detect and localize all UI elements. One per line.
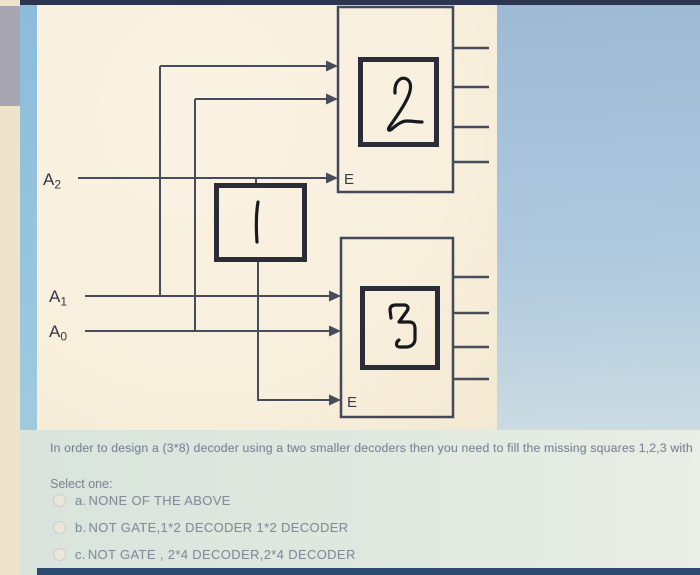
answer-options: a.NONE OF THE ABOVE b.NOT GATE,1*2 DECOD… — [53, 493, 356, 562]
decoder-circuit-diagram: E E A2 A1 A0 — [37, 5, 497, 430]
option-text: NOT GATE , 2*4 DECODER,2*4 DECODER — [88, 547, 356, 562]
option-label: c.NOT GATE , 2*4 DECODER,2*4 DECODER — [75, 547, 356, 562]
radio-button-a[interactable] — [53, 494, 66, 507]
arrow-icon — [326, 61, 338, 72]
option-letter: a. — [75, 493, 87, 508]
arrow-icon — [329, 291, 341, 302]
decoder-diagram-panel: E E A2 A1 A0 — [37, 5, 497, 430]
arrow-icon — [326, 94, 338, 105]
enable-label-bottom: E — [347, 394, 357, 411]
handwritten-digit-2 — [389, 78, 422, 130]
option-row-a[interactable]: a.NONE OF THE ABOVE — [53, 493, 356, 508]
input-label-a1: A1 — [49, 287, 67, 309]
arrow-icon — [326, 173, 338, 184]
left-blue-strip — [20, 5, 37, 430]
missing-square-3 — [363, 289, 438, 368]
option-row-b[interactable]: b.NOT GATE,1*2 DECODER 1*2 DECODER — [53, 520, 356, 535]
select-one-label: Select one: — [50, 477, 113, 491]
missing-square-1 — [217, 186, 305, 260]
option-text: NOT GATE,1*2 DECODER 1*2 DECODER — [89, 520, 349, 535]
left-gray-block — [0, 6, 20, 106]
option-letter: c. — [75, 547, 86, 562]
input-label-a0: A0 — [49, 322, 67, 344]
quiz-screenshot: E E A2 A1 A0 In order to design a (3*8) … — [0, 0, 700, 575]
handwritten-digit-1 — [256, 202, 258, 242]
question-text: In order to design a (3*8) decoder using… — [50, 441, 693, 455]
option-row-c[interactable]: c.NOT GATE , 2*4 DECODER,2*4 DECODER — [53, 547, 356, 562]
radio-button-c[interactable] — [53, 548, 66, 561]
arrow-icon — [329, 326, 341, 337]
bottom-decoder-outputs — [453, 277, 489, 379]
missing-square-2 — [361, 60, 437, 145]
handwritten-digit-3 — [390, 305, 415, 347]
radio-button-b[interactable] — [53, 521, 66, 534]
input-label-a2: A2 — [43, 170, 61, 192]
option-label: b.NOT GATE,1*2 DECODER 1*2 DECODER — [75, 520, 349, 535]
arrow-icon — [329, 395, 341, 406]
top-decoder-outputs — [453, 48, 489, 162]
option-label: a.NONE OF THE ABOVE — [75, 493, 231, 508]
enable-label-top: E — [344, 171, 354, 188]
option-text: NONE OF THE ABOVE — [89, 493, 231, 508]
wires — [78, 66, 330, 400]
question-section: In order to design a (3*8) decoder using… — [20, 430, 700, 575]
bottom-window-strip — [37, 568, 700, 575]
option-letter: b. — [75, 520, 87, 535]
